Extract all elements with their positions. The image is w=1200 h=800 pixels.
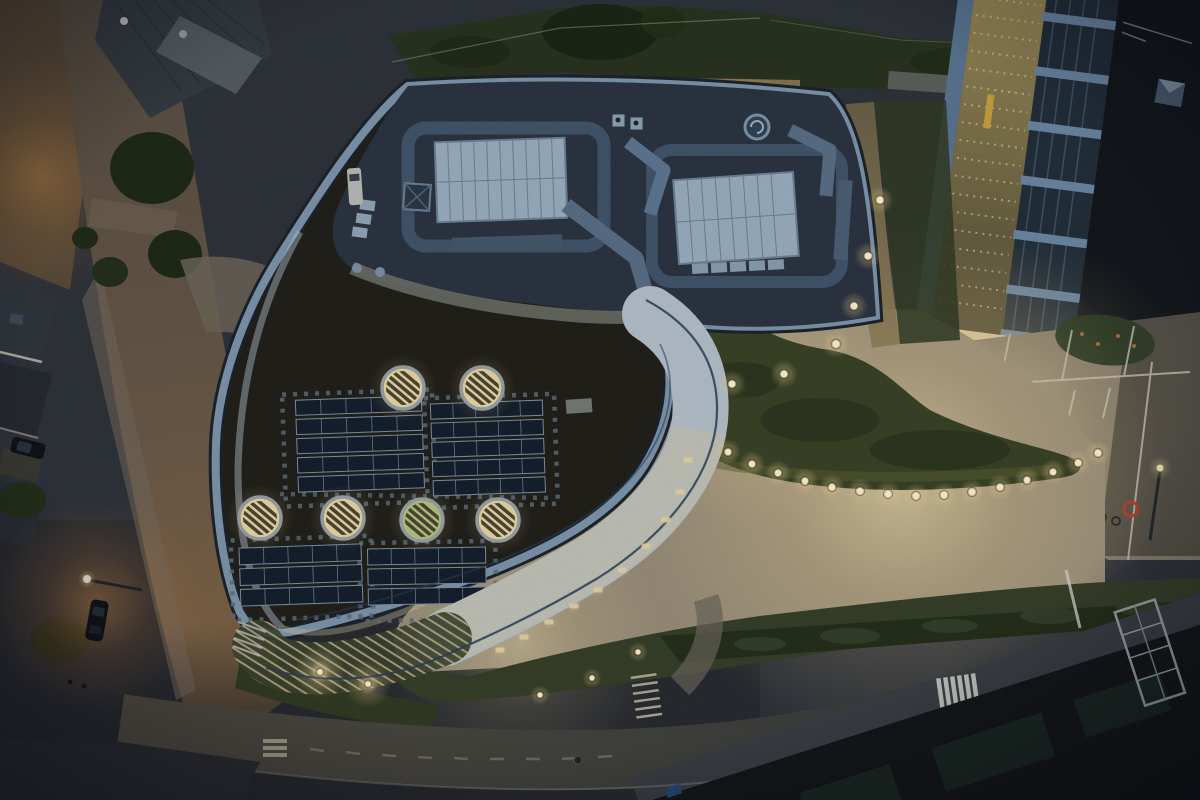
vignette (0, 0, 1200, 800)
scene-canvas (0, 0, 1200, 800)
aerial-photo (0, 0, 1200, 800)
